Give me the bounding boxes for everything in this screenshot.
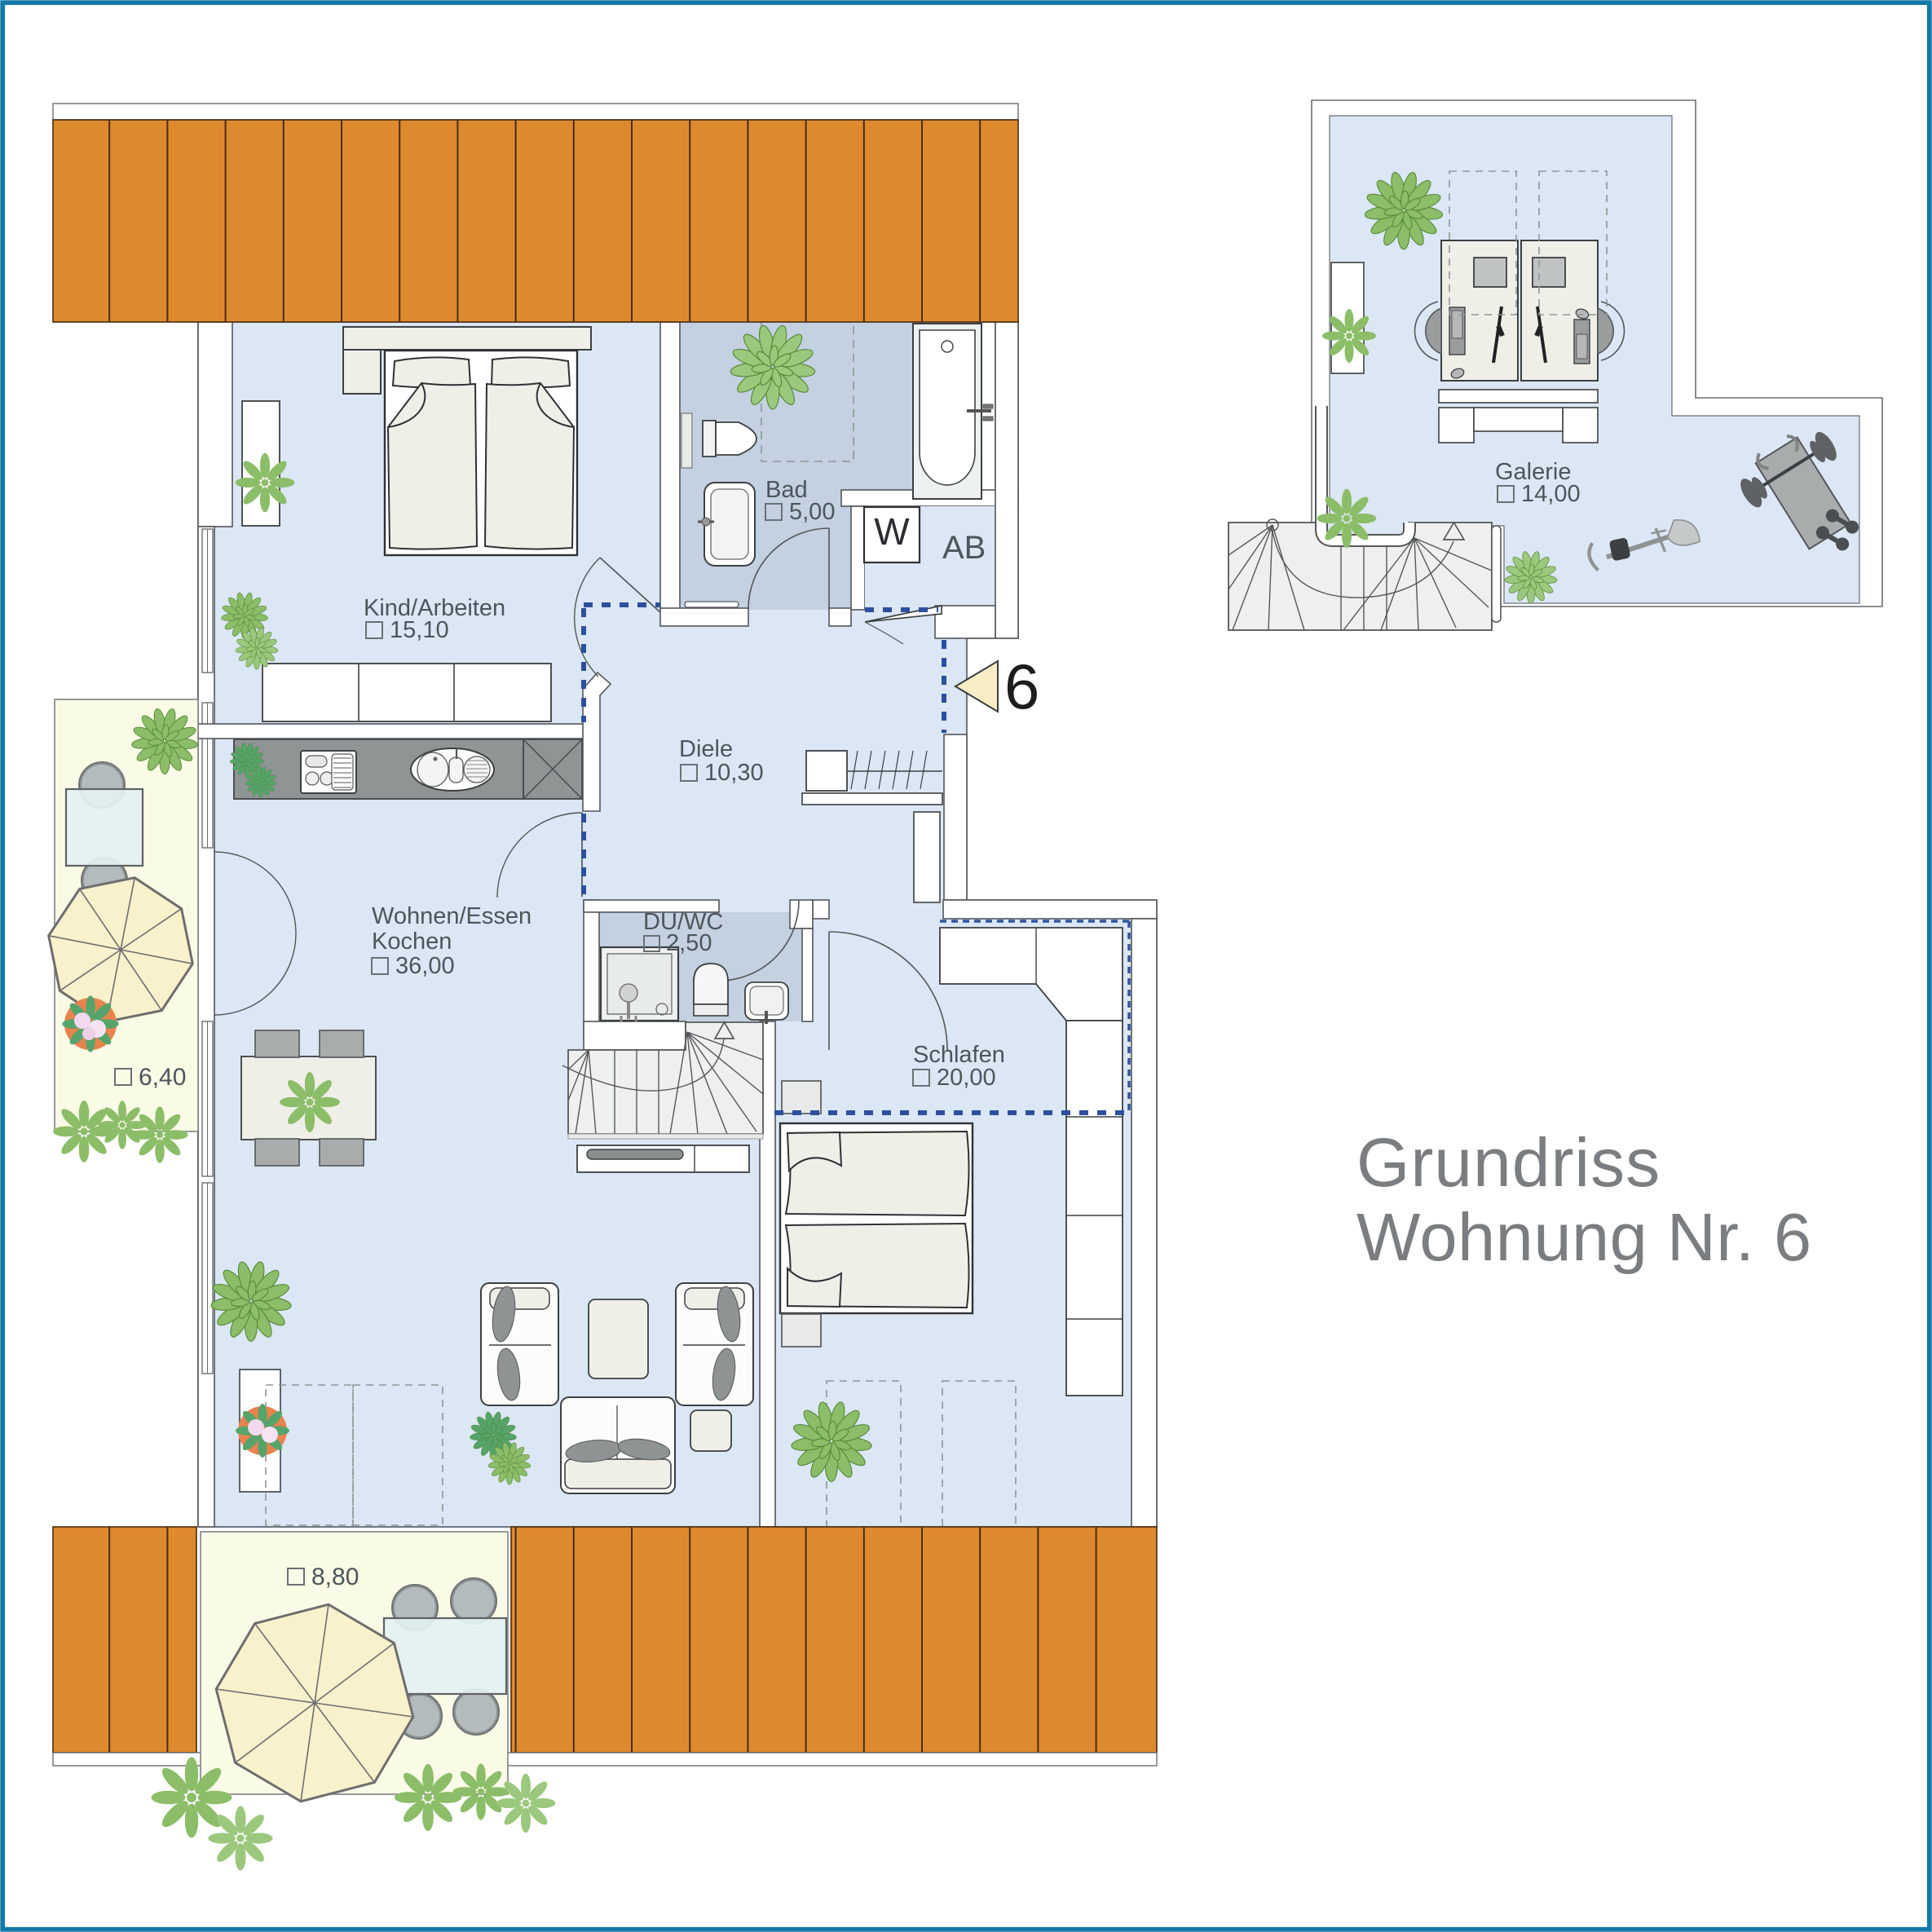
svg-text:Grundriss: Grundriss <box>1356 1124 1661 1201</box>
svg-text:36,00: 36,00 <box>395 953 455 979</box>
svg-text:20,00: 20,00 <box>937 1065 996 1091</box>
svg-text:10,30: 10,30 <box>704 760 764 786</box>
svg-text:Kochen: Kochen <box>372 929 452 955</box>
svg-text:8,80: 8,80 <box>311 1564 359 1590</box>
svg-text:6,40: 6,40 <box>139 1064 186 1091</box>
svg-text:15,10: 15,10 <box>390 617 449 643</box>
svg-text:Wohnung Nr. 6: Wohnung Nr. 6 <box>1356 1199 1812 1275</box>
svg-text:Diele: Diele <box>679 736 733 762</box>
svg-text:14,00: 14,00 <box>1521 481 1581 507</box>
svg-text:W: W <box>874 510 910 553</box>
svg-text:Wohnen/Essen: Wohnen/Essen <box>372 903 532 929</box>
svg-text:5,00: 5,00 <box>789 499 835 525</box>
svg-text:AB: AB <box>942 530 986 566</box>
svg-text:6: 6 <box>1004 651 1039 722</box>
svg-text:2,50: 2,50 <box>666 930 712 956</box>
